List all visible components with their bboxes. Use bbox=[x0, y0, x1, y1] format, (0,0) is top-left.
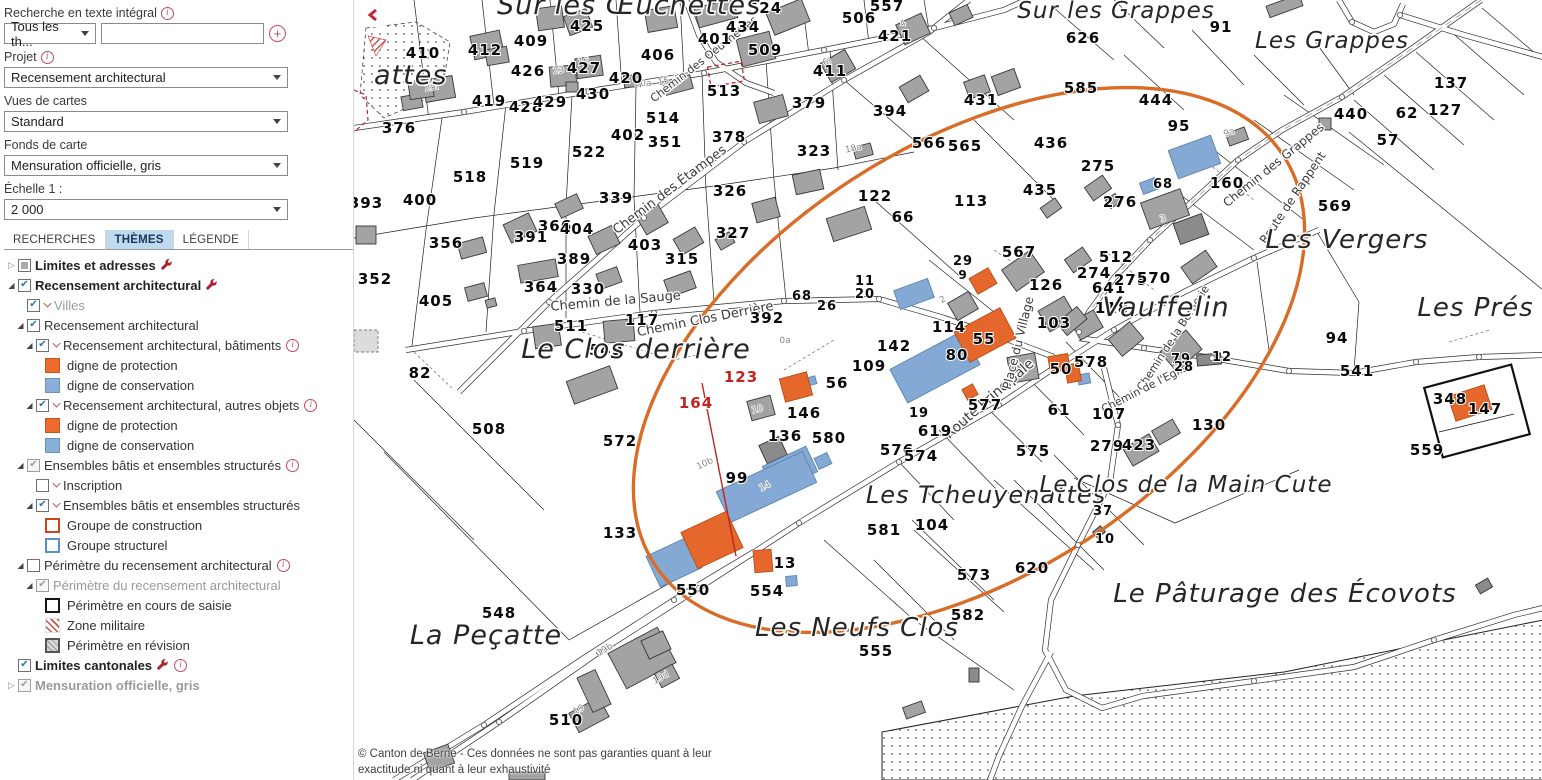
parcel-number: 554 bbox=[750, 582, 784, 600]
layer-checkbox[interactable]: ✔ bbox=[18, 659, 31, 672]
layer-label: Limites et adresses bbox=[35, 258, 156, 273]
parcel-number: 541 bbox=[1340, 362, 1374, 380]
parcel-number: 405 bbox=[419, 292, 453, 310]
parcel-number: 352 bbox=[358, 270, 392, 288]
layer-checkbox[interactable]: ✔ bbox=[27, 459, 40, 472]
parcel-number: 82 bbox=[409, 364, 432, 382]
copyright-line1: © Canton de Berne - Ces données ne sont … bbox=[358, 747, 712, 763]
parcel-number: 12 bbox=[1212, 350, 1232, 365]
parcel-number: 323 bbox=[797, 142, 831, 160]
expander-open-icon[interactable]: ◢ bbox=[24, 501, 35, 510]
lot-number: 10b bbox=[695, 456, 715, 472]
layer-checkbox[interactable]: ✔ bbox=[18, 279, 31, 292]
layer-checkbox[interactable] bbox=[27, 559, 40, 572]
layer-tree-item[interactable]: digne de conservation bbox=[4, 375, 353, 395]
building-conservation bbox=[786, 576, 798, 587]
parcel-number: 518 bbox=[453, 168, 487, 186]
chevron-down-icon bbox=[273, 163, 281, 168]
parcel-number: 577 bbox=[968, 396, 1002, 414]
parcel-number: 339 bbox=[599, 189, 633, 207]
parcel-number: 10 bbox=[1095, 532, 1115, 547]
parcel-number: 107 bbox=[1092, 405, 1126, 423]
tab-légende[interactable]: LÉGENDE bbox=[174, 230, 249, 249]
building bbox=[752, 197, 780, 223]
parcel-number: 578 bbox=[1074, 353, 1108, 371]
collapse-sidebar-button[interactable] bbox=[362, 3, 384, 27]
info-icon[interactable]: i bbox=[277, 559, 290, 572]
building bbox=[485, 298, 497, 308]
expander-open-icon[interactable]: ◢ bbox=[6, 281, 17, 290]
parcel-number: 406 bbox=[641, 46, 675, 64]
place-label: La Peçatte bbox=[410, 620, 562, 651]
parcel-number: 400 bbox=[403, 191, 437, 209]
parcel-number: 569 bbox=[1318, 197, 1352, 215]
layer-label: Groupe structurel bbox=[67, 538, 167, 553]
place-label: Vauffelin bbox=[1102, 292, 1229, 323]
layer-label: Ensembles bâtis et ensembles structurés bbox=[63, 498, 300, 513]
parcel-number: 62 bbox=[1396, 104, 1419, 122]
layer-label: Mensuration officielle, gris bbox=[35, 678, 200, 693]
layer-tree: ▷Limites et adresses◢✔Recensement archit… bbox=[4, 255, 353, 695]
place-label: Le Clos derrière bbox=[521, 334, 751, 365]
info-icon[interactable]: i bbox=[41, 51, 54, 64]
layer-tree-item[interactable]: Zone militaire bbox=[4, 615, 353, 635]
building bbox=[465, 283, 488, 302]
parcel-number: 440 bbox=[1334, 105, 1368, 123]
parcel-number: 420 bbox=[609, 69, 643, 87]
parcel-number: 160 bbox=[1210, 174, 1244, 192]
layer-tree-item[interactable]: ◢✔Périmètre du recensement architectural bbox=[4, 575, 353, 595]
parcel-number-red: 164 bbox=[679, 394, 713, 412]
parcel-number: 99 bbox=[726, 469, 749, 487]
layer-tree-item[interactable]: ◢✔Recensement architectural, autres obje… bbox=[4, 395, 353, 415]
parcel-number: 519 bbox=[510, 154, 544, 172]
field-label: Échelle 1 : bbox=[4, 182, 62, 196]
lot-number: 23 bbox=[552, 65, 565, 76]
parcel-number: 572 bbox=[603, 432, 637, 450]
info-icon[interactable]: i bbox=[304, 399, 317, 412]
layer-tree-item[interactable]: ◢✔Recensement architectural bbox=[4, 315, 353, 335]
parcel-number: 13 bbox=[774, 554, 797, 572]
building bbox=[1040, 198, 1062, 218]
info-icon[interactable]: i bbox=[161, 7, 174, 20]
parcel-number: 426 bbox=[511, 62, 545, 80]
layer-label: Limites cantonales bbox=[35, 658, 152, 673]
style-caret-icon[interactable] bbox=[44, 300, 52, 308]
sidebar-fields: ProjetiRecensement architecturalVues de … bbox=[4, 50, 353, 220]
parcel-number: 430 bbox=[576, 85, 610, 103]
field-label: Vues de cartes bbox=[4, 94, 87, 108]
place-label: Les Vergers bbox=[1266, 225, 1429, 255]
parcel-number: 28 bbox=[1174, 360, 1194, 375]
copyright-line2: exactitude ni quant à leur exhaustivité bbox=[358, 763, 712, 779]
parcel-number: 364 bbox=[524, 278, 558, 296]
parcel-number: 509 bbox=[748, 41, 782, 59]
parcel-number: 567 bbox=[1002, 243, 1036, 261]
parcel-number: 57 bbox=[1377, 131, 1400, 149]
expander-open-icon[interactable]: ◢ bbox=[15, 321, 26, 330]
layer-label: Recensement architectural bbox=[35, 278, 201, 293]
layer-tree-item[interactable]: Groupe structurel bbox=[4, 535, 353, 555]
parcel-number: 626 bbox=[1066, 29, 1100, 47]
parcel-number: 327 bbox=[716, 224, 750, 242]
legend-swatch-blue-outline bbox=[45, 538, 60, 553]
parcel-number: 392 bbox=[750, 309, 784, 327]
parcel-number: 403 bbox=[628, 236, 662, 254]
parcel-number: 103 bbox=[1037, 314, 1071, 332]
building bbox=[555, 194, 584, 219]
layer-tree-item[interactable]: ✔Villes bbox=[4, 295, 353, 315]
layer-checkbox[interactable]: ✔ bbox=[36, 579, 49, 592]
building bbox=[1266, 0, 1303, 18]
building-conservation bbox=[1168, 135, 1221, 179]
legend-swatch-blue bbox=[45, 378, 60, 393]
parcel-number: 19 bbox=[909, 406, 929, 421]
parcel-number: 513 bbox=[707, 82, 741, 100]
lot-number: 0a bbox=[779, 336, 790, 346]
field-label: Projet bbox=[4, 50, 37, 64]
building bbox=[566, 366, 617, 404]
place-label: Le Pâturage des Écovots bbox=[1113, 577, 1456, 609]
layer-label: digne de protection bbox=[67, 358, 178, 373]
parcel-number: 66 bbox=[892, 208, 915, 226]
layer-checkbox[interactable] bbox=[36, 479, 49, 492]
parcel-number: 412 bbox=[468, 41, 502, 59]
layer-checkbox[interactable]: ✔ bbox=[36, 399, 49, 412]
parcel-number: 95 bbox=[1168, 117, 1191, 135]
building-protection bbox=[753, 549, 773, 572]
parcel-number: 444 bbox=[1139, 91, 1173, 109]
parcel-number: 351 bbox=[648, 133, 682, 151]
parcel-number: 559 bbox=[1410, 441, 1444, 459]
parcel-number: 29 bbox=[953, 254, 973, 269]
wrench-icon bbox=[157, 659, 169, 671]
info-icon[interactable]: i bbox=[286, 339, 299, 352]
layer-label: Recensement architectural bbox=[44, 318, 199, 333]
parcel-number: 391 bbox=[514, 228, 548, 246]
layer-tree-item[interactable]: ◢✔Ensembles bâtis et ensembles structuré… bbox=[4, 455, 353, 475]
building-protection bbox=[779, 372, 812, 402]
legend-swatch-red-hatch bbox=[45, 618, 60, 633]
parcel-number: 574 bbox=[904, 447, 938, 465]
layer-tree-item[interactable]: ✔Limites cantonalesi bbox=[4, 655, 353, 675]
parcel-number: 379 bbox=[792, 94, 826, 112]
parcel-number: 393 bbox=[354, 194, 383, 212]
layer-checkbox[interactable]: ✔ bbox=[27, 299, 40, 312]
search-category-value: Tous les th... bbox=[11, 19, 75, 49]
layer-tree-item[interactable]: ◢✔Recensement architectural bbox=[4, 275, 353, 295]
expander-closed-icon[interactable]: ▷ bbox=[6, 260, 17, 271]
parcel-number: 142 bbox=[877, 337, 911, 355]
layer-label: Ensembles bâtis et ensembles structurés bbox=[44, 458, 281, 473]
layer-label: digne de conservation bbox=[67, 438, 194, 453]
building bbox=[792, 169, 824, 194]
style-caret-icon[interactable] bbox=[53, 480, 61, 488]
parcel-number: 429 bbox=[533, 93, 567, 111]
buildings-layer bbox=[354, 0, 1493, 780]
parcel-number: 127 bbox=[1428, 101, 1462, 119]
parcel-number: 411 bbox=[813, 62, 847, 80]
place-label: Sur les Œuchettes bbox=[497, 0, 761, 21]
parcel-number: 620 bbox=[1015, 559, 1049, 577]
parcel-number: 276 bbox=[1103, 193, 1137, 211]
parcel-number: 423 bbox=[1122, 436, 1156, 454]
layer-tree-item[interactable]: ▷✔Mensuration officielle, gris bbox=[4, 675, 353, 695]
parcel-number: 126 bbox=[1029, 276, 1063, 294]
wrench-icon bbox=[161, 259, 173, 271]
sidebar: Recherche en texte intégral i Tous les t… bbox=[0, 0, 353, 780]
search-input[interactable] bbox=[101, 23, 264, 44]
parcel-number: 147 bbox=[1468, 400, 1502, 418]
parcel-number: 573 bbox=[957, 566, 991, 584]
parcel-number: 330 bbox=[571, 280, 605, 298]
layer-tree-item[interactable]: Périmètre en cours de saisie bbox=[4, 595, 353, 615]
map-copyright: © Canton de Berne - Ces données ne sont … bbox=[358, 747, 712, 778]
layer-label: Périmètre en révision bbox=[67, 638, 190, 653]
app-window: Recherche en texte intégral i Tous les t… bbox=[0, 0, 1542, 780]
parcel-number: 580 bbox=[812, 429, 846, 447]
layer-tree-item[interactable]: digne de conservation bbox=[4, 435, 353, 455]
style-caret-icon[interactable] bbox=[53, 340, 61, 348]
map-container[interactable]: Chemin des OeuchettesChemin des ÉtampesC… bbox=[353, 0, 1542, 780]
parcel-number: 55 bbox=[973, 330, 996, 348]
field-select-2[interactable]: Mensuration officielle, gris bbox=[4, 155, 288, 176]
parcel-number: 68 bbox=[1153, 177, 1173, 192]
expander-open-icon[interactable]: ◢ bbox=[15, 461, 26, 470]
building-projected bbox=[354, 330, 378, 352]
layer-checkbox[interactable]: ✔ bbox=[27, 319, 40, 332]
parcel-number: 94 bbox=[1326, 329, 1349, 347]
parcel-number: 275 bbox=[1081, 157, 1115, 175]
parcel-number: 522 bbox=[572, 143, 606, 161]
legend-swatch-orange bbox=[45, 358, 60, 373]
parcel-number: 61 bbox=[1048, 401, 1071, 419]
parcel-number: 130 bbox=[1192, 416, 1226, 434]
field-value: Mensuration officielle, gris bbox=[11, 158, 161, 173]
parcel-number: 436 bbox=[1034, 134, 1068, 152]
parcel-number: 585 bbox=[1064, 79, 1098, 97]
parcel-number: 113 bbox=[954, 192, 988, 210]
parcel-number: 68 bbox=[792, 289, 812, 304]
parcel-number: 122 bbox=[858, 187, 892, 205]
parcel-number: 427 bbox=[567, 59, 601, 77]
layer-label: Villes bbox=[54, 298, 85, 313]
parcel-number: 348 bbox=[1433, 390, 1467, 408]
wrench-icon bbox=[206, 279, 218, 291]
layer-tree-item[interactable]: Inscription bbox=[4, 475, 353, 495]
parcel-number: 136 bbox=[768, 427, 802, 445]
layer-label: Recensement architectural, autres objets bbox=[63, 398, 299, 413]
parcel-number: 104 bbox=[915, 516, 949, 534]
place-label: attes bbox=[374, 60, 447, 91]
building-conservation bbox=[814, 453, 832, 470]
expander-closed-icon[interactable]: ▷ bbox=[6, 680, 17, 691]
parcel-number: 378 bbox=[712, 128, 746, 146]
layer-label: Périmètre du recensement architectural bbox=[44, 558, 272, 573]
parcel-number: 114 bbox=[932, 318, 966, 336]
field-value: Standard bbox=[11, 114, 64, 129]
parcel-number: 402 bbox=[611, 126, 645, 144]
parcel-number-red: 123 bbox=[724, 368, 758, 386]
parcel-number: 570 bbox=[1137, 269, 1171, 287]
building bbox=[903, 701, 926, 719]
parcel-number: 315 bbox=[665, 250, 699, 268]
parcel-number: 431 bbox=[964, 91, 998, 109]
parcel-number: 508 bbox=[472, 420, 506, 438]
chevron-down-icon bbox=[273, 75, 281, 80]
layer-tree-item[interactable]: ◢Périmètre du recensement architecturali bbox=[4, 555, 353, 575]
legend-swatch-gray-hatch bbox=[45, 638, 60, 653]
parcel-number: 409 bbox=[514, 32, 548, 50]
building bbox=[899, 75, 929, 103]
tab-recherches[interactable]: RECHERCHES bbox=[4, 230, 106, 249]
layer-label: Recensement architectural, bâtiments bbox=[63, 338, 281, 353]
lot-number: 2 bbox=[938, 295, 948, 307]
parcel-number: 279 bbox=[1090, 437, 1124, 455]
layer-tree-item[interactable]: ▷Limites et adresses bbox=[4, 255, 353, 275]
parcel-number: 435 bbox=[1023, 181, 1057, 199]
place-label: Les Neufs Clos bbox=[755, 613, 959, 643]
add-search-button[interactable]: + bbox=[269, 25, 286, 42]
building bbox=[1475, 578, 1492, 594]
chevron-down-icon bbox=[273, 119, 281, 124]
field-select-3[interactable]: 2 000 bbox=[4, 199, 288, 220]
parcel-number: 376 bbox=[382, 119, 416, 137]
tab-thèmes[interactable]: THÈMES bbox=[106, 230, 174, 249]
place-label: Le Clos de la Main Cute bbox=[1040, 472, 1333, 498]
parcel-number: 109 bbox=[852, 357, 886, 375]
chevron-left-icon bbox=[367, 8, 379, 22]
parcel-number: 566 bbox=[912, 134, 946, 152]
layer-tree-item[interactable]: ◢✔Ensembles bâtis et ensembles structuré… bbox=[4, 495, 353, 515]
parcel-number: 550 bbox=[676, 581, 710, 599]
layer-tree-item[interactable]: digne de protection bbox=[4, 355, 353, 375]
expander-open-icon[interactable]: ◢ bbox=[15, 561, 26, 570]
parcel-number: 514 bbox=[646, 109, 680, 127]
expander-open-icon[interactable]: ◢ bbox=[24, 581, 35, 590]
legend-swatch-blue bbox=[45, 438, 60, 453]
parcel-number: 557 bbox=[870, 0, 904, 15]
parcel-number: 419 bbox=[472, 92, 506, 110]
layer-label: Groupe de construction bbox=[67, 518, 202, 533]
layer-tree-item[interactable]: Groupe de construction bbox=[4, 515, 353, 535]
layer-label: digne de protection bbox=[67, 418, 178, 433]
building-conservation bbox=[894, 278, 935, 309]
parcel-number: 421 bbox=[878, 27, 912, 45]
parcel-number: 117 bbox=[625, 311, 659, 329]
expander-open-icon[interactable]: ◢ bbox=[24, 401, 35, 410]
place-label: Les Prés Dieu bbox=[1417, 293, 1542, 323]
parcel-number: 26 bbox=[817, 299, 837, 314]
parcel-number: 389 bbox=[557, 250, 591, 268]
place-label: Sur les Grappes bbox=[1017, 0, 1214, 24]
building bbox=[356, 226, 376, 244]
style-caret-icon[interactable] bbox=[53, 400, 61, 408]
layer-label: Périmètre du recensement architectural bbox=[53, 578, 281, 593]
parcel-number: 510 bbox=[549, 711, 583, 729]
parcel-number: 394 bbox=[873, 102, 907, 120]
building bbox=[1108, 322, 1144, 357]
building bbox=[969, 668, 979, 682]
field-label: Fonds de carte bbox=[4, 138, 87, 152]
parcel-number: 137 bbox=[1434, 74, 1468, 92]
parcel-number: 511 bbox=[554, 317, 588, 335]
parcel-number: 581 bbox=[867, 521, 901, 539]
layer-checkbox[interactable]: ✔ bbox=[36, 339, 49, 352]
field-value: 2 000 bbox=[11, 202, 44, 217]
layer-label: digne de conservation bbox=[67, 378, 194, 393]
tab-bar: RECHERCHESTHÈMESLÉGENDE bbox=[4, 230, 353, 250]
info-icon[interactable]: i bbox=[174, 659, 187, 672]
legend-swatch-orange-outline bbox=[45, 518, 60, 533]
layer-checkbox[interactable] bbox=[18, 259, 31, 272]
parcel-number: 565 bbox=[948, 137, 982, 155]
building bbox=[826, 206, 871, 241]
chevron-down-icon bbox=[273, 207, 281, 212]
parcel-number: 56 bbox=[826, 374, 849, 392]
parcel-number: 146 bbox=[787, 404, 821, 422]
parcel-number: 50 bbox=[1050, 360, 1073, 378]
layer-tree-item[interactable]: digne de protection bbox=[4, 415, 353, 435]
parcel-number: 9 bbox=[958, 268, 967, 282]
field-value: Recensement architectural bbox=[11, 70, 166, 85]
parcel-number: 356 bbox=[429, 234, 463, 252]
layer-tree-item[interactable]: ◢✔Recensement architectural, bâtimentsi bbox=[4, 335, 353, 355]
parcel-number: 555 bbox=[859, 642, 893, 660]
building-protection bbox=[969, 268, 997, 295]
map-canvas[interactable]: Chemin des OeuchettesChemin des ÉtampesC… bbox=[354, 0, 1542, 780]
parcel-number: 575 bbox=[1016, 442, 1050, 460]
chevron-down-icon bbox=[81, 31, 89, 36]
field-select-0[interactable]: Recensement architectural bbox=[4, 67, 288, 88]
layer-tree-item[interactable]: Périmètre en révision bbox=[4, 635, 353, 655]
layer-label: Périmètre en cours de saisie bbox=[67, 598, 232, 613]
parcel-number: 133 bbox=[603, 524, 637, 542]
layer-label: Zone militaire bbox=[67, 618, 145, 633]
info-icon[interactable]: i bbox=[286, 459, 299, 472]
expander-open-icon[interactable]: ◢ bbox=[24, 341, 35, 350]
layer-label: Inscription bbox=[63, 478, 122, 493]
legend-swatch-orange bbox=[45, 418, 60, 433]
parcel-number: 326 bbox=[713, 182, 747, 200]
parcel-number: 619 bbox=[918, 422, 952, 440]
layer-checkbox[interactable]: ✔ bbox=[36, 499, 49, 512]
place-label: Les Grappes bbox=[1255, 28, 1409, 54]
search-category-select[interactable]: Tous les th... bbox=[4, 23, 96, 44]
layer-checkbox[interactable]: ✔ bbox=[18, 679, 31, 692]
parcel-number: 404 bbox=[560, 220, 594, 238]
field-select-1[interactable]: Standard bbox=[4, 111, 288, 132]
parcel-number: 80 bbox=[946, 346, 969, 364]
style-caret-icon[interactable] bbox=[53, 500, 61, 508]
legend-swatch-black-outline bbox=[45, 598, 60, 613]
parcel-number: 20 bbox=[855, 287, 875, 302]
